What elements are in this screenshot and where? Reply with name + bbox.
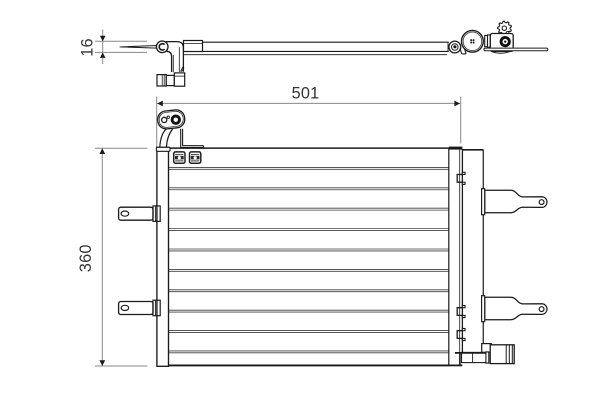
svg-text:360: 360 <box>77 244 95 272</box>
svg-text:16: 16 <box>78 38 96 57</box>
svg-text:501: 501 <box>292 84 320 102</box>
